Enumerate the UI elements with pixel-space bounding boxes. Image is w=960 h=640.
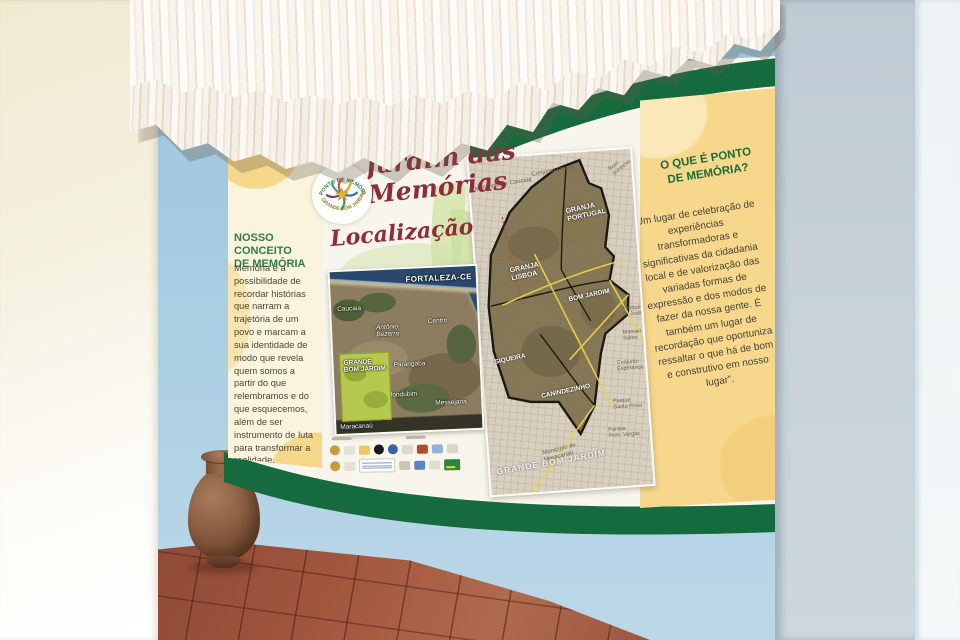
partner-logos-strip bbox=[330, 435, 483, 476]
partner-logo-chip bbox=[330, 461, 340, 471]
partner-logos-row bbox=[330, 457, 460, 473]
grande-bom-jardim-district-map: Município de Caucaia Conjunto Ceará Bom … bbox=[466, 147, 655, 498]
map-label-parangaba: Parangaba bbox=[393, 360, 425, 369]
partner-logo-chip bbox=[402, 444, 413, 453]
partner-logo-chip bbox=[417, 444, 428, 453]
partner-logo-chip bbox=[388, 444, 398, 454]
map-label-fortaleza-ce: FORTALEZA-CE bbox=[405, 272, 472, 284]
partner-logo-chip bbox=[359, 458, 395, 473]
map-label-conjunto-esperanca: Conjunto Esperança bbox=[617, 358, 644, 372]
partner-logo-chip bbox=[429, 460, 440, 469]
clay-vase bbox=[188, 450, 260, 574]
partner-logo-chip bbox=[414, 460, 425, 469]
far-right-wall-strip bbox=[915, 0, 960, 640]
left-panel-body: Memória é a possibilidade de recordar hi… bbox=[234, 262, 318, 467]
partner-logo-chip bbox=[359, 445, 370, 454]
left-text-panel: NOSSO CONCEITO DE MEMÓRIA Memória é a po… bbox=[228, 132, 322, 468]
map-label-caucaia: Caucaia bbox=[337, 305, 361, 314]
map-label-grande-bom-jardim: GRANDE BOM JARDIM bbox=[343, 358, 386, 375]
map-label-parque-pres-vargas: Parque Pres. Vargas bbox=[608, 425, 640, 440]
partner-logo-chip bbox=[330, 445, 340, 455]
map-label-messejana: Messejana bbox=[435, 398, 467, 407]
logos-group-label-bar bbox=[332, 437, 352, 440]
map-label-centro: Centro bbox=[428, 317, 448, 325]
map-label-mondubim: Mondubim bbox=[387, 391, 418, 400]
fortaleza-satellite-map: FORTALEZA-CE Caucaia Antônio Bezerra Cen… bbox=[327, 264, 484, 436]
map-label-antonio-bezerra: Antônio Bezerra bbox=[376, 323, 399, 339]
district-map-drawing bbox=[468, 149, 653, 495]
partner-logo-chip bbox=[344, 461, 355, 470]
right-panel-heading: O QUE É PONTO DE MEMÓRIA? bbox=[642, 142, 771, 191]
map-label-manoel-satiro: Manoel Sátiro bbox=[623, 328, 642, 342]
map-label-parque-s-jose: Parque S. José bbox=[623, 304, 642, 318]
partner-logo-chip bbox=[447, 444, 458, 453]
partner-logos-row bbox=[330, 443, 458, 455]
right-text-panel: O QUE É PONTO DE MEMÓRIA? “Um lugar de c… bbox=[640, 88, 776, 508]
map-label-parque-santa-rosa: Parque Santa Rosa bbox=[613, 397, 643, 412]
partner-logo-chip bbox=[399, 460, 410, 469]
map-label-maracanau: Maracanaú bbox=[340, 422, 373, 431]
grande-bom-jardim-highlight: GRANDE BOM JARDIM bbox=[339, 352, 392, 422]
vase-body bbox=[188, 468, 260, 560]
logos-group-label-bar bbox=[406, 436, 426, 439]
right-panel-body: “Um lugar de celebração de experiências … bbox=[631, 197, 782, 399]
partner-logo-chip bbox=[344, 445, 355, 454]
partner-logo-chip bbox=[374, 444, 384, 454]
partner-logo-chip bbox=[432, 444, 443, 453]
blue-gray-wall-column bbox=[775, 0, 915, 640]
brasil-government-logo bbox=[444, 459, 460, 470]
